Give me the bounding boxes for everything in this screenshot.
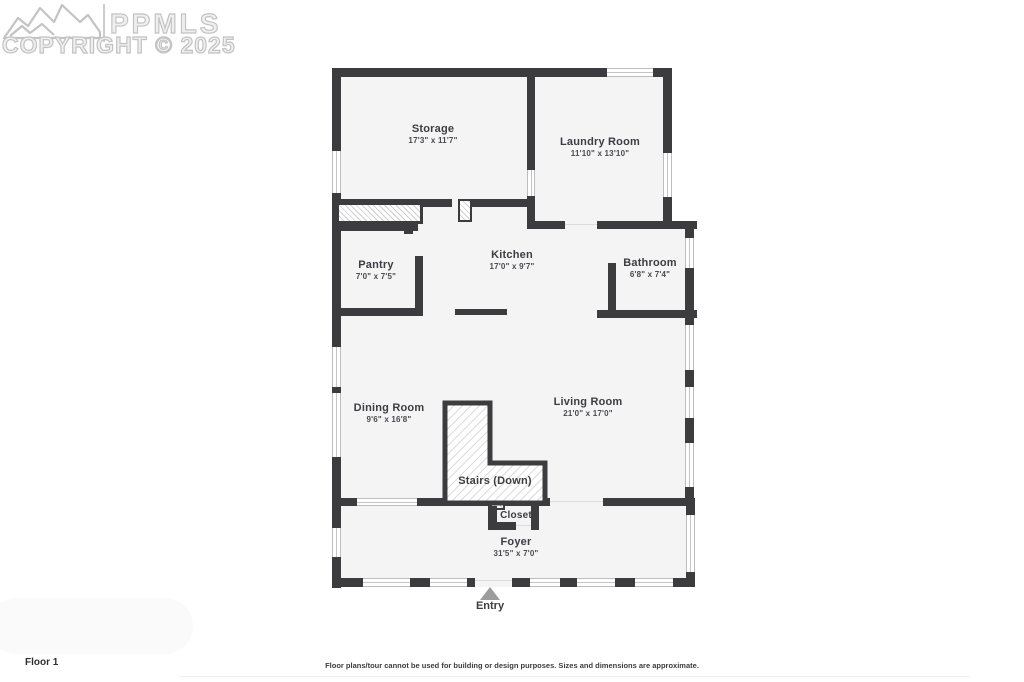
room-label-bathroom: Bathroom 6'8" x 7'4"	[623, 257, 677, 279]
entry-arrow-icon	[480, 587, 500, 600]
floor-plan-page: PPMLS COPYRIGHT © 2025	[0, 0, 1024, 682]
dining-dims: 9'6" x 16'8"	[354, 415, 425, 424]
pantry-right-wall	[415, 256, 423, 315]
room-label-foyer: Foyer 31'5" x 7'0"	[494, 536, 539, 558]
living-right-window-2	[685, 387, 694, 418]
pantry-door-jamb	[404, 226, 413, 234]
dining-left-window-1	[332, 347, 341, 387]
room-label-dining: Dining Room 9'6" x 16'8"	[354, 402, 425, 424]
kitchen-name: Kitchen	[490, 249, 535, 261]
foyer-bottom-window-5	[635, 578, 673, 587]
laundry-top-window	[607, 68, 653, 77]
stairs-down-shape	[442, 400, 550, 506]
storage-name: Storage	[408, 123, 457, 135]
left-exterior-wall	[332, 68, 341, 588]
laundry-name: Laundry Room	[560, 136, 640, 148]
bathroom-dims: 6'8" x 7'4"	[623, 270, 677, 279]
storage-bottom-wall-right	[472, 199, 535, 207]
laundry-doorway-threshold	[565, 224, 597, 225]
room-label-pantry: Pantry 7'0" x 7'5"	[356, 259, 396, 281]
room-label-kitchen: Kitchen 17'0" x 9'7"	[490, 249, 535, 271]
kitchen-peninsula-wall	[455, 309, 507, 315]
pantry-bottom-wall	[332, 308, 423, 316]
bathroom-bottom-wall	[597, 310, 697, 318]
room-label-stairs: Stairs (Down)	[458, 475, 532, 487]
kitchen-dims: 17'0" x 9'7"	[490, 262, 535, 271]
foyer-bottom-window-3	[530, 578, 560, 587]
closet-door-line	[516, 525, 531, 526]
page-edge-line	[180, 676, 970, 677]
closet-name: Closet	[500, 510, 532, 521]
disclaimer-text: Floor plans/tour cannot be used for buil…	[325, 661, 699, 670]
room-label-closet: Closet	[500, 510, 532, 521]
entry-label: Entry	[476, 600, 504, 612]
bathroom-name: Bathroom	[623, 257, 677, 269]
storage-laundry-pass-window	[527, 170, 535, 196]
foyer-bottom-window-1	[363, 578, 410, 587]
room-label-laundry: Laundry Room 11'10" x 13'10"	[560, 136, 640, 158]
foyer-bottom-window-2	[430, 578, 467, 587]
pantry-name: Pantry	[356, 259, 396, 271]
foyer-dims: 31'5" x 7'0"	[494, 549, 539, 558]
kitchen-door-jamb-hatch	[458, 199, 472, 222]
dining-foyer-window	[357, 498, 417, 506]
dining-left-window-2	[332, 393, 341, 457]
laundry-dims: 11'10" x 13'10"	[560, 149, 640, 158]
floor-number-label: Floor 1	[25, 657, 58, 668]
laundry-right-wall	[663, 68, 672, 229]
pantry-dims: 7'0" x 7'5"	[356, 272, 396, 281]
foyer-left-window	[332, 528, 341, 557]
foyer-right-window	[686, 515, 695, 572]
laundry-bottom-wall-left	[527, 221, 565, 229]
living-right-window-3	[685, 443, 694, 487]
dining-name: Dining Room	[354, 402, 425, 414]
room-label-storage: Storage 17'3" x 11'7"	[408, 123, 457, 145]
closet-right-wall	[531, 506, 539, 530]
closet-bottom-wall	[488, 522, 516, 530]
foyer-doorway-threshold	[550, 501, 603, 502]
watermark-copyright: COPYRIGHT © 2025	[2, 32, 236, 59]
laundry-bathroom-top-wall	[597, 221, 697, 229]
faded-watermark-blob	[0, 598, 193, 654]
foyer-top-wall-right	[603, 498, 691, 506]
laundry-right-window	[663, 153, 672, 197]
storage-left-window	[332, 151, 341, 193]
living-right-window-1	[685, 325, 694, 370]
living-dims: 21'0" x 17'0"	[554, 409, 623, 418]
entry-threshold	[475, 580, 512, 581]
stairs-name: Stairs (Down)	[458, 475, 532, 487]
bathroom-right-window	[685, 238, 694, 268]
upper-stairs-hatch	[336, 202, 423, 224]
foyer-name: Foyer	[494, 536, 539, 548]
living-name: Living Room	[554, 396, 623, 408]
room-label-living: Living Room 21'0" x 17'0"	[554, 396, 623, 418]
storage-dims: 17'3" x 11'7"	[408, 136, 457, 145]
foyer-bottom-window-4	[577, 578, 615, 587]
